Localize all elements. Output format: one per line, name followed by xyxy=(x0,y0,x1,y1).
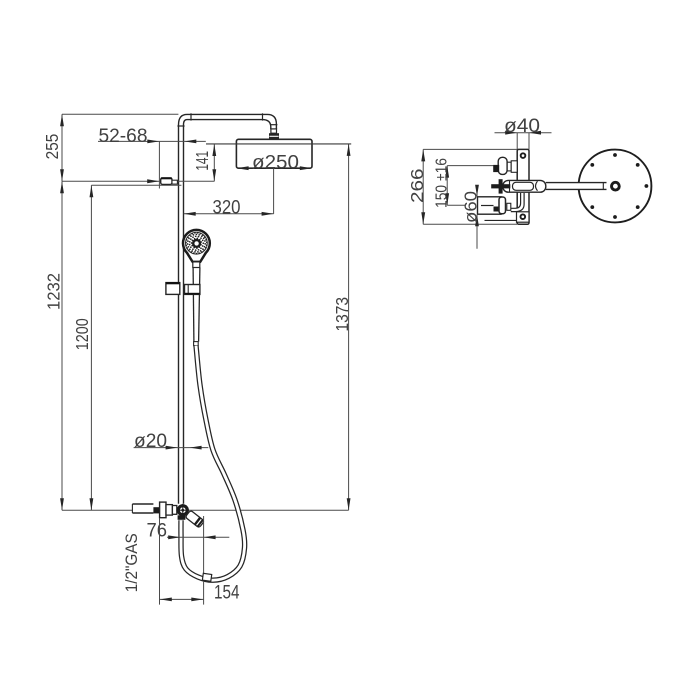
svg-text:52-68: 52-68 xyxy=(99,126,148,147)
svg-text:1373: 1373 xyxy=(332,297,352,332)
svg-text:ø40: ø40 xyxy=(504,116,540,137)
svg-text:266: 266 xyxy=(407,169,427,204)
svg-text:1200: 1200 xyxy=(72,318,92,350)
svg-text:ø250: ø250 xyxy=(252,153,299,174)
svg-text:76: 76 xyxy=(147,520,168,541)
svg-text:ø20: ø20 xyxy=(134,431,167,452)
svg-text:154: 154 xyxy=(214,582,240,603)
svg-text:320: 320 xyxy=(213,197,241,218)
svg-text:255: 255 xyxy=(42,134,62,160)
svg-text:150 ±16: 150 ±16 xyxy=(433,158,450,208)
svg-text:1/2"GAS: 1/2"GAS xyxy=(122,533,141,592)
svg-text:141: 141 xyxy=(192,151,212,171)
svg-text:1232: 1232 xyxy=(44,273,64,310)
